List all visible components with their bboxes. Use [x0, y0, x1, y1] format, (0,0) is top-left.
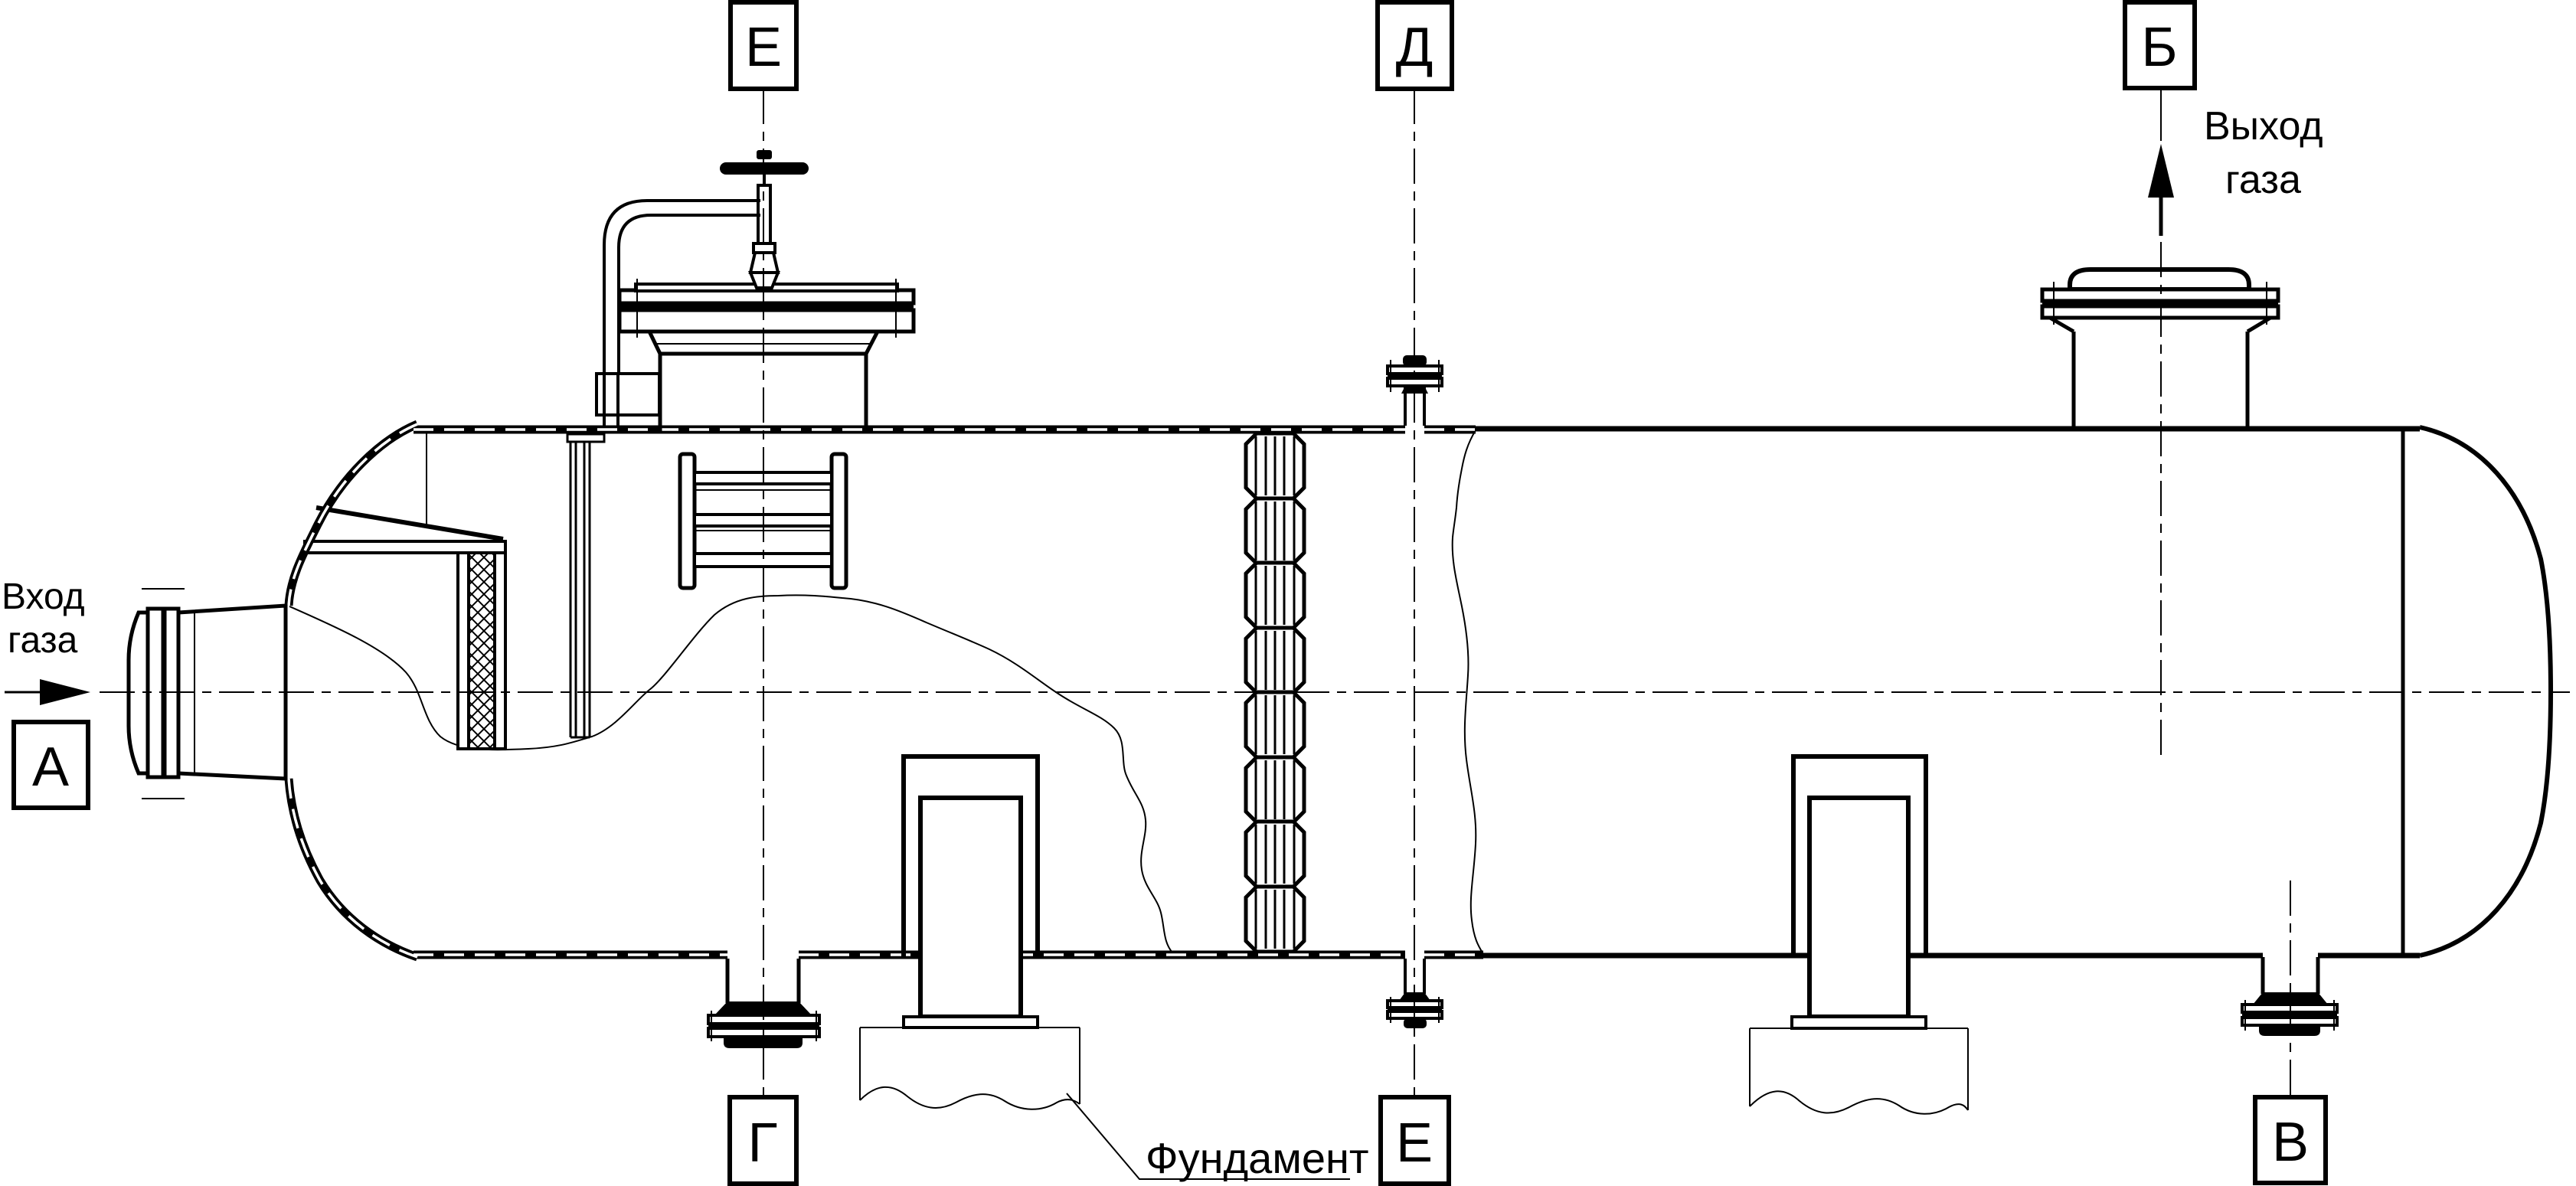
marker-box-e-bottom: Е: [1381, 1097, 1449, 1184]
foundation-annotation: Фундамент: [1067, 1093, 1369, 1182]
frame-end-plate-left: [680, 454, 695, 588]
outlet-flow-arrow: [2148, 144, 2174, 198]
outlet-label-line2: газа: [2225, 158, 2301, 202]
inlet-label-line1: Вход: [2, 577, 85, 617]
marker-box-e-top: Е: [731, 2, 796, 89]
foundation-left: [860, 1028, 1080, 1109]
marker-box-a: А: [14, 722, 88, 808]
deflector-horizontal-plate: [305, 541, 505, 553]
marker-box-d: Д: [1378, 2, 1452, 89]
marker-letter-v: В: [2272, 1112, 2309, 1173]
marker-box-v: В: [2255, 1097, 2326, 1183]
foundation-right-wavy-bottom: [1750, 1091, 1968, 1113]
nozzle-b-dome-cap: [2070, 270, 2249, 289]
foundation-label: Фундамент: [1146, 1134, 1369, 1182]
demister-block: [1246, 498, 1304, 564]
demister-block: [1246, 692, 1304, 757]
base-plate-right: [1792, 1017, 1926, 1028]
mesh-frame-right: [495, 553, 505, 749]
mesh-frame-left: [458, 553, 469, 749]
marker-letter-e-bottom: Е: [1396, 1112, 1433, 1174]
inlet-label-line2: газа: [8, 620, 78, 661]
frame-end-plate-right: [832, 454, 846, 588]
marker-letter-e-top: Е: [745, 17, 782, 78]
manhole-nozzle-e: [597, 150, 914, 433]
demister-block: [1246, 757, 1304, 822]
vessel-shell: [289, 424, 2551, 957]
marker-letter-a: А: [32, 737, 69, 798]
inlet-flow-annotation: Вход газа: [2, 577, 90, 705]
marker-letter-b: Б: [2141, 17, 2177, 78]
pipe-support-bracket: [597, 374, 659, 415]
marker-box-b: Б Выход газа: [2125, 2, 2323, 236]
demister-block: [1246, 887, 1304, 952]
demister-block: [1246, 628, 1304, 693]
saddle-rib-left: [920, 798, 1021, 1017]
vessel-general-view-drawing: Вход газа А Е Д Б Выход газа: [0, 0, 2576, 1186]
inlet-deflector: [305, 508, 505, 553]
manhole-flange-ring: [619, 310, 914, 332]
foundation-left-wavy-bottom: [860, 1087, 1080, 1109]
demister-block: [1246, 563, 1304, 628]
base-plate-left: [904, 1017, 1038, 1028]
section-break-freeform: [289, 595, 1172, 952]
dip-pipe-pad: [567, 434, 604, 442]
annotations: Вход газа А Е Д Б Выход газа: [2, 2, 2326, 1184]
marker-letter-d: Д: [1396, 17, 1433, 78]
inlet-flow-arrow: [40, 679, 90, 705]
saddle-support-right: [1750, 756, 1968, 1114]
mesh-pad: [469, 553, 495, 749]
marker-box-g: Г: [730, 1097, 796, 1184]
deflector-diagonal-plate: [316, 508, 503, 539]
saddle-support-left: [860, 756, 1080, 1109]
marker-letter-g: Г: [748, 1112, 778, 1174]
outlet-label-line1: Выход: [2204, 104, 2323, 149]
foundation-right: [1750, 1028, 1968, 1114]
saddle-rib-right: [1809, 798, 1908, 1017]
wire-mesh-coalescer: [456, 553, 507, 749]
inlet-nozzle-a: [129, 589, 286, 799]
left-head-sectioned: [289, 424, 417, 957]
demister-block: [1246, 822, 1304, 887]
demister-block: [1246, 433, 1304, 498]
